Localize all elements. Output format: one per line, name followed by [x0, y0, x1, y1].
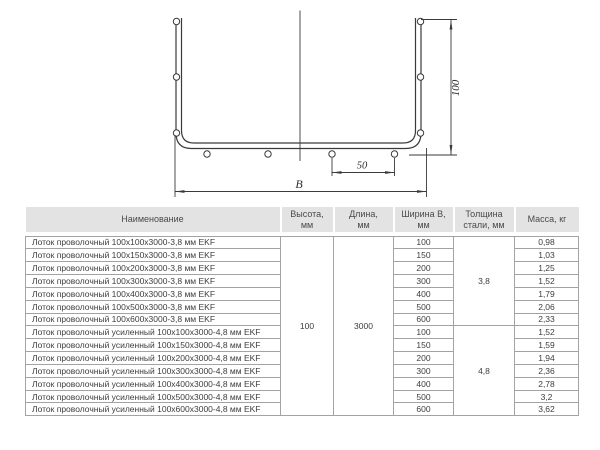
header-name: Наименование — [26, 207, 281, 232]
spec-table: Наименование Высота, мм Длина, мм Ширина… — [25, 207, 579, 416]
tray-profile — [176, 18, 421, 149]
wire-circle — [173, 74, 179, 80]
mass-cell: 1,03 — [515, 249, 579, 262]
width-cell: 600 — [394, 313, 454, 326]
wire-circle — [173, 18, 179, 24]
product-name: Лоток проволочный 100x500x3000-3,8 мм EK… — [26, 300, 281, 313]
length-cell: 3000 — [334, 236, 394, 416]
mass-cell: 3,62 — [515, 403, 579, 416]
dim-width-label: B — [295, 177, 303, 191]
width-cell: 100 — [394, 326, 454, 339]
mass-cell: 1,52 — [515, 326, 579, 339]
product-name: Лоток проволочный усиленный 100x500x3000… — [26, 390, 281, 403]
mass-cell: 2,78 — [515, 377, 579, 390]
arrowhead — [175, 190, 185, 193]
table-row: Лоток проволочный 100x100x3000-3,8 мм EK… — [26, 236, 579, 249]
dimension-height: 100 — [409, 20, 462, 156]
mass-cell: 1,25 — [515, 262, 579, 275]
wire-circles — [173, 18, 423, 157]
header-width: Ширина В, мм — [394, 207, 454, 232]
mass-cell: 0,98 — [515, 236, 579, 249]
spec-table-body: Лоток проволочный 100x100x3000-3,8 мм EK… — [26, 232, 579, 416]
wire-circle — [265, 151, 271, 157]
width-cell: 200 — [394, 262, 454, 275]
thickness-cell: 4,8 — [454, 326, 515, 416]
product-name: Лоток проволочный 100x100x3000-3,8 мм EK… — [26, 236, 281, 249]
width-cell: 500 — [394, 390, 454, 403]
header-length: Длина, мм — [334, 207, 394, 232]
mass-cell: 2,06 — [515, 300, 579, 313]
mass-cell: 1,52 — [515, 275, 579, 288]
header-height: Высота, мм — [281, 207, 334, 232]
product-name: Лоток проволочный 100x200x3000-3,8 мм EK… — [26, 262, 281, 275]
product-name: Лоток проволочный 100x150x3000-3,8 мм EK… — [26, 249, 281, 262]
product-name: Лоток проволочный усиленный 100x400x3000… — [26, 377, 281, 390]
dim-height-label: 100 — [450, 79, 462, 96]
height-cell: 100 — [281, 236, 334, 416]
wire-circle — [204, 151, 210, 157]
arrowhead — [385, 171, 395, 174]
wire-circle — [417, 74, 423, 80]
wire-circle — [329, 151, 335, 157]
spec-table-header: Наименование Высота, мм Длина, мм Ширина… — [26, 207, 579, 232]
width-cell: 500 — [394, 300, 454, 313]
header-thickness: Толщина стали, мм — [454, 207, 515, 232]
width-cell: 150 — [394, 339, 454, 352]
arrowhead — [417, 190, 427, 193]
width-cell: 400 — [394, 287, 454, 300]
arrowhead — [450, 145, 453, 155]
mass-cell: 3,2 — [515, 390, 579, 403]
tray-cross-section-diagram: 100 50 B — [0, 0, 600, 205]
header-mass: Масса, кг — [515, 207, 579, 232]
product-name: Лоток проволочный усиленный 100x150x3000… — [26, 339, 281, 352]
dimension-spacing: 50 — [332, 158, 395, 176]
mass-cell: 2,36 — [515, 364, 579, 377]
arrowhead — [332, 171, 342, 174]
wire-circle — [417, 130, 423, 136]
width-cell: 400 — [394, 377, 454, 390]
width-cell: 300 — [394, 275, 454, 288]
product-name: Лоток проволочный усиленный 100x600x3000… — [26, 403, 281, 416]
datasheet-page: 100 50 B Наименование — [0, 0, 600, 450]
thickness-cell: 3,8 — [454, 236, 515, 326]
mass-cell: 2,33 — [515, 313, 579, 326]
dimension-width: B — [175, 135, 427, 197]
width-cell: 300 — [394, 364, 454, 377]
product-name: Лоток проволочный 100x600x3000-3,8 мм EK… — [26, 313, 281, 326]
tray-outer-contour — [176, 18, 421, 149]
arrowhead — [450, 20, 453, 30]
mass-cell: 1,59 — [515, 339, 579, 352]
product-name: Лоток проволочный 100x400x3000-3,8 мм EK… — [26, 287, 281, 300]
width-cell: 150 — [394, 249, 454, 262]
width-cell: 200 — [394, 352, 454, 365]
product-name: Лоток проволочный 100x300x3000-3,8 мм EK… — [26, 275, 281, 288]
mass-cell: 1,79 — [515, 287, 579, 300]
product-name: Лоток проволочный усиленный 100x100x3000… — [26, 326, 281, 339]
product-name: Лоток проволочный усиленный 100x200x3000… — [26, 352, 281, 365]
product-name: Лоток проволочный усиленный 100x300x3000… — [26, 364, 281, 377]
tray-inner-contour — [182, 18, 416, 143]
wire-circle — [391, 151, 397, 157]
width-cell: 600 — [394, 403, 454, 416]
width-cell: 100 — [394, 236, 454, 249]
dim-spacing-label: 50 — [357, 161, 368, 172]
mass-cell: 1,94 — [515, 352, 579, 365]
wire-circle — [173, 130, 179, 136]
